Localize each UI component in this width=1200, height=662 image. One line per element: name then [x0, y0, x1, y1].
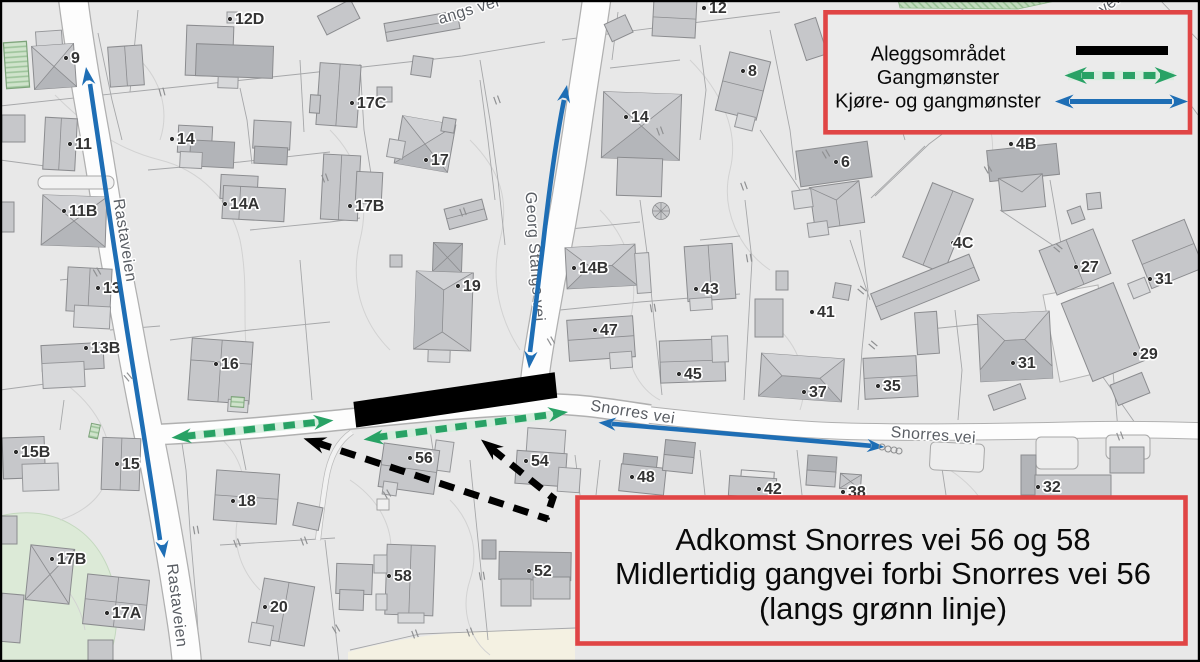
- svg-text:35: 35: [883, 378, 901, 395]
- svg-text:31: 31: [1155, 271, 1173, 288]
- svg-text:15: 15: [122, 456, 140, 473]
- svg-text:45: 45: [684, 366, 702, 383]
- svg-text:4B: 4B: [1016, 136, 1036, 153]
- svg-text:47: 47: [600, 322, 618, 339]
- svg-text:4C: 4C: [953, 235, 974, 252]
- svg-text:6: 6: [841, 154, 850, 171]
- svg-text:52: 52: [534, 563, 552, 580]
- svg-text:15B: 15B: [21, 444, 50, 461]
- svg-text:Midlertidig gangvei forbi Snor: Midlertidig gangvei forbi Snorres vei 56: [615, 556, 1151, 591]
- svg-text:17: 17: [431, 152, 449, 169]
- svg-text:56: 56: [415, 450, 433, 467]
- svg-text:29: 29: [1140, 346, 1158, 363]
- svg-text:41: 41: [817, 304, 835, 321]
- svg-text:Adkomst Snorres vei 56 og 58: Adkomst Snorres vei 56 og 58: [675, 522, 1090, 557]
- svg-text:17C: 17C: [357, 95, 387, 112]
- svg-text:8: 8: [748, 63, 757, 80]
- svg-text:19: 19: [463, 278, 481, 295]
- svg-text:14A: 14A: [230, 196, 260, 213]
- svg-text:11B: 11B: [69, 203, 97, 220]
- svg-text:14B: 14B: [579, 260, 608, 277]
- svg-text:20: 20: [270, 599, 288, 616]
- svg-text:32: 32: [1043, 479, 1061, 496]
- svg-text:14: 14: [631, 109, 649, 126]
- svg-text:31: 31: [1018, 355, 1036, 372]
- svg-text:11: 11: [75, 136, 92, 153]
- svg-text:13B: 13B: [91, 340, 120, 357]
- svg-text:58: 58: [394, 568, 412, 585]
- svg-text:Gangmønster: Gangmønster: [877, 67, 1000, 89]
- svg-text:Kjøre- og gangmønster: Kjøre- og gangmønster: [835, 91, 1041, 113]
- svg-text:17A: 17A: [112, 605, 142, 622]
- svg-text:16: 16: [221, 356, 239, 373]
- svg-text:Aleggsområdet: Aleggsområdet: [871, 44, 1006, 66]
- svg-text:12D: 12D: [235, 11, 264, 28]
- svg-text:17B: 17B: [57, 551, 86, 568]
- svg-text:43: 43: [701, 281, 719, 298]
- svg-text:17B: 17B: [355, 198, 384, 215]
- svg-text:37: 37: [809, 384, 827, 401]
- svg-text:27: 27: [1081, 259, 1099, 276]
- svg-text:48: 48: [637, 469, 655, 486]
- svg-text:18: 18: [238, 493, 256, 510]
- svg-text:(langs grønn linje): (langs grønn linje): [759, 591, 1007, 626]
- svg-text:12: 12: [709, 0, 727, 17]
- svg-text:54: 54: [531, 453, 549, 470]
- svg-text:9: 9: [71, 50, 80, 67]
- svg-text:14: 14: [177, 131, 195, 148]
